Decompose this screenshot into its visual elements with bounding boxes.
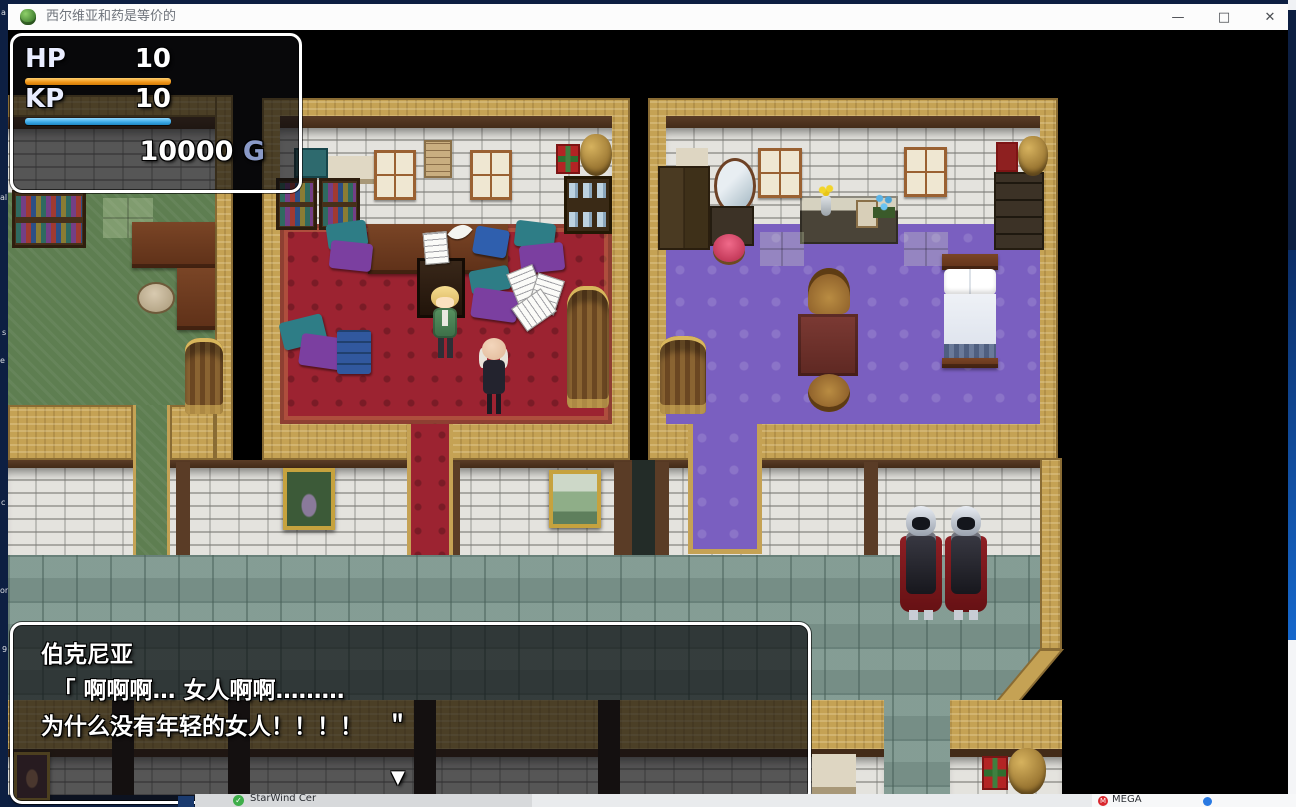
kp-value: 10 [13,84,171,114]
desktop-text-fragment: s [2,328,6,337]
office-roof-edge [280,116,612,128]
maximize-button[interactable]: □ [1202,4,1246,30]
window [470,150,512,200]
guard-armor [906,532,936,594]
notice-board [424,140,452,178]
gold-amount: 10000 [139,136,233,167]
paper [423,231,450,265]
guard-visor [957,517,975,530]
bed-footboard [942,358,998,368]
bed-blanket [944,294,996,346]
npc-leg [447,338,453,358]
book [472,225,510,258]
wall-pillar [614,462,632,555]
book-stack [337,330,371,374]
npc-leg [438,338,444,358]
guard-boot [969,610,978,620]
yellow-flowers [817,183,835,197]
background-window[interactable] [532,794,1092,807]
guard[interactable] [898,506,944,620]
desktop-text-fragment: al [0,193,7,202]
red-books [996,142,1018,172]
dialogue-speaker: 伯克尼亚 [41,637,133,673]
pink-stool [713,234,745,262]
lower-wall-top [950,700,1062,757]
money-bag [580,134,612,176]
minimize-button[interactable]: — [1156,4,1200,30]
gift-box [556,144,580,174]
window [374,150,416,200]
gift-box [982,756,1008,790]
mega-label: MEGA [1112,794,1142,806]
desktop-text-fragment: e [0,356,5,365]
chair [808,268,850,314]
guard-boot [954,610,963,620]
npc-body [483,360,505,394]
book-pile [470,287,520,323]
status-window: HP 10 KP 10 10000 G [10,33,302,193]
window [904,147,947,197]
guard[interactable] [943,506,989,620]
alley-gap [632,460,655,555]
blue-flowers [873,190,895,218]
money-bag [1018,136,1048,176]
corner-wall-diagonal [985,644,1065,706]
background-window-edge [1288,640,1296,807]
npc-blonde[interactable] [427,286,463,362]
corner-wall [1040,458,1062,650]
chair [808,374,850,412]
npc-leg [496,394,501,414]
guard-boot [909,610,918,620]
npc-shirt [442,310,448,326]
close-button[interactable]: ✕ [1248,4,1292,30]
barrel [660,336,706,414]
app-icon [20,9,36,25]
desktop-text-fragment: 9 [2,645,7,654]
window [758,148,802,198]
barrel [185,338,223,414]
desktop-text-fragment: c [1,498,5,507]
wardrobe [658,166,710,250]
bookshelf [12,190,86,248]
desktop-text-fragment: a [1,8,6,17]
continue-indicator-icon: ▼ [391,767,405,788]
desktop-edge [1288,250,1296,640]
wall-pillar [864,462,878,555]
check-icon: ✓ [233,795,244,806]
guard-boot [924,610,933,620]
gold-display: 10000 G [13,136,265,167]
gold-unit: G [243,136,265,167]
barrel [567,286,609,408]
desktop-text-fragment: or [0,586,8,595]
hp-value: 10 [13,44,171,74]
item-shelf [564,176,612,234]
npc-bald[interactable] [477,336,511,416]
dialogue-window[interactable]: 伯克尼亚 「 啊啊啊… 女人啊啊……… 为什么没有年轻的女人！！！！ ＂ ▼ [10,622,811,804]
bed-pillows [944,269,996,295]
bedroom-doorway [688,424,762,554]
counter [132,222,215,268]
street-wall-roof [8,460,632,468]
small-table [812,754,856,795]
background-window-starwind[interactable]: ✓ StarWind Cer [195,794,532,807]
money-bag [1008,748,1046,795]
counter [177,268,215,330]
bed-headboard [942,254,998,270]
dialogue-line: 「 啊啊啊… 女人啊啊……… [41,673,345,709]
window-title: 西尔维亚和药是等价的 [46,4,176,30]
wall-pillar [655,462,669,555]
round-stool [137,282,175,314]
guard-visor [912,517,930,530]
portrait-painting [283,468,335,530]
dresser [994,172,1044,250]
bedroom-roof-edge [666,116,1040,128]
kp-bar [25,118,171,125]
mega-icon: M [1098,796,1108,806]
blue-dot-icon [1203,797,1212,806]
wall-pillar [176,462,190,555]
window-light [760,232,804,266]
npc-leg [487,394,492,414]
left-room-wall-bottom [8,405,133,460]
desktop-icon-fragment [178,796,194,807]
background-window-mega[interactable]: M MEGA [1092,794,1296,807]
flower-vase [821,196,831,216]
table [798,314,858,376]
landscape-painting [549,470,601,528]
npc-head [482,338,506,360]
npc-face [436,297,454,308]
left-room-doorway [133,405,170,555]
guard-armor [951,532,981,594]
dialogue-line: 为什么没有年轻的女人！！！！ ＂ [41,709,409,745]
office-doorway [407,424,453,555]
starwind-label: StarWind Cer [250,794,316,805]
title-bar: 西尔维亚和药是等价的 — □ ✕ [8,4,1288,30]
book-pile [329,240,374,272]
screen: a al s e c or 9 西尔维亚和药是等价的 — □ ✕ [0,0,1296,807]
